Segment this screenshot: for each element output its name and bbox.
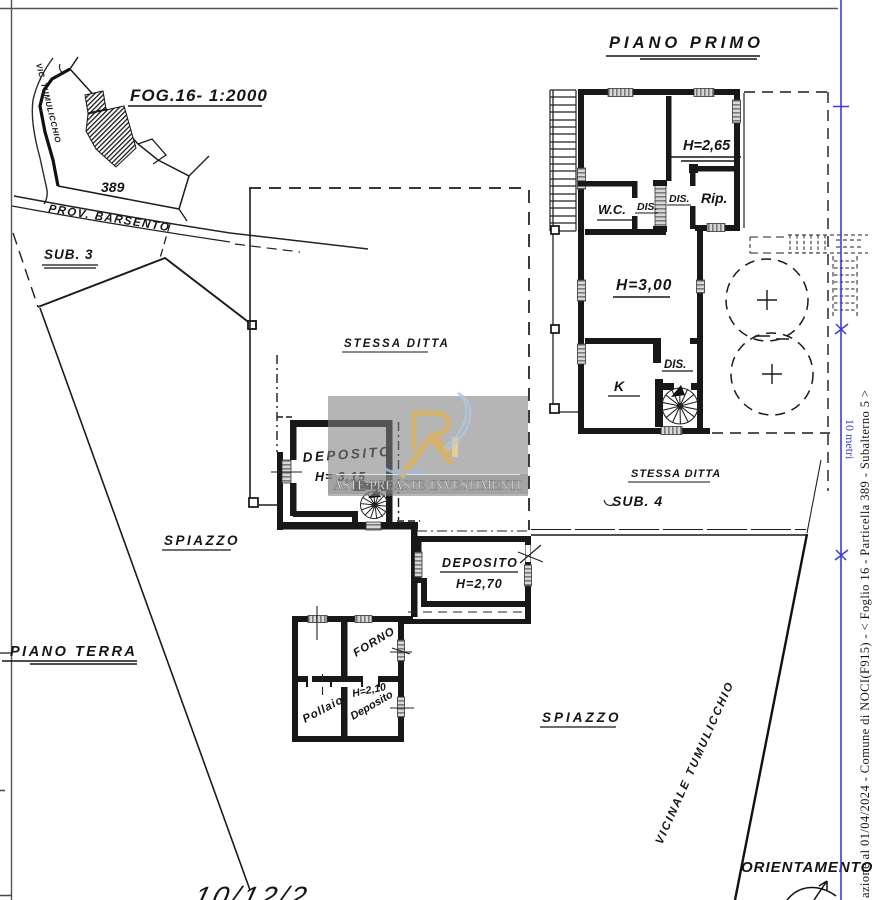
svg-text:STESSA DITTA: STESSA DITTA: [631, 468, 721, 480]
svg-text:SUB. 4: SUB. 4: [612, 493, 663, 509]
svg-text:H=2,65: H=2,65: [683, 138, 731, 154]
svg-text:10 metri: 10 metri: [843, 419, 857, 460]
svg-text:SPIAZZO: SPIAZZO: [542, 710, 622, 725]
svg-text:389: 389: [101, 179, 125, 195]
svg-text:STESSA DITTA: STESSA DITTA: [344, 338, 450, 350]
svg-text:ASTE·PREASTE·INVESTIMENTI: ASTE·PREASTE·INVESTIMENTI: [333, 478, 521, 493]
svg-text:DIS.: DIS.: [637, 201, 658, 213]
svg-text:10/12/2: 10/12/2: [190, 881, 312, 900]
svg-text:DEPOSITO: DEPOSITO: [442, 556, 518, 570]
svg-text:PIANO TERRA: PIANO TERRA: [10, 644, 137, 660]
svg-text:PIANO PRIMO: PIANO PRIMO: [609, 34, 764, 52]
svg-text:DIS.: DIS.: [669, 193, 690, 205]
svg-text:SUB. 3: SUB. 3: [44, 247, 94, 262]
svg-text:azione al 01/04/2024 - Comune: azione al 01/04/2024 - Comune di NOCI(F9…: [858, 390, 872, 898]
svg-text:DIS.: DIS.: [664, 359, 686, 371]
svg-text:K: K: [614, 378, 625, 394]
svg-text:H=3,00: H=3,00: [616, 277, 672, 294]
svg-text:ORIENTAMENTO: ORIENTAMENTO: [741, 859, 873, 876]
svg-text:SPIAZZO: SPIAZZO: [164, 533, 240, 548]
svg-text:Rip.: Rip.: [701, 190, 727, 206]
svg-text:W.C.: W.C.: [598, 202, 626, 217]
svg-text:H=2,70: H=2,70: [456, 577, 503, 591]
svg-text:FOG.16- 1:2000: FOG.16- 1:2000: [130, 86, 268, 105]
